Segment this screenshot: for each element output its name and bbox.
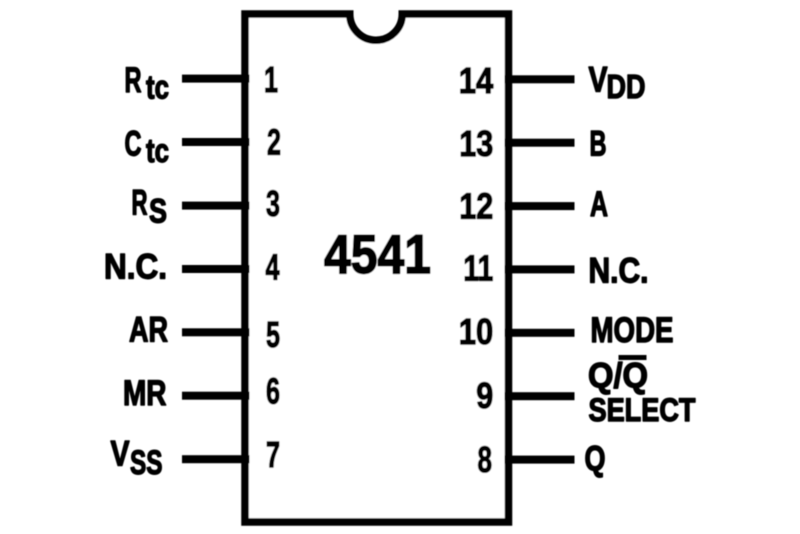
svg-text:R: R bbox=[125, 61, 142, 100]
svg-text:5: 5 bbox=[266, 314, 280, 355]
svg-text:C: C bbox=[125, 125, 142, 164]
svg-text:tc: tc bbox=[146, 69, 169, 106]
svg-text:SELECT: SELECT bbox=[589, 392, 696, 428]
svg-text:10: 10 bbox=[459, 311, 494, 352]
svg-text:V: V bbox=[111, 435, 131, 474]
svg-text:tc: tc bbox=[146, 132, 169, 169]
svg-text:8: 8 bbox=[478, 439, 493, 480]
svg-text:DD: DD bbox=[607, 68, 646, 105]
svg-text:4541: 4541 bbox=[324, 223, 431, 285]
svg-text:6: 6 bbox=[266, 371, 280, 412]
svg-text:12: 12 bbox=[459, 186, 493, 227]
svg-text:V: V bbox=[589, 61, 609, 100]
svg-text:4: 4 bbox=[266, 247, 280, 288]
svg-text:A: A bbox=[590, 185, 608, 224]
svg-text:1: 1 bbox=[264, 59, 278, 100]
svg-text:AR: AR bbox=[129, 311, 168, 350]
svg-text:B: B bbox=[590, 125, 607, 164]
svg-text:R: R bbox=[132, 184, 148, 223]
svg-text:N.C.: N.C. bbox=[589, 252, 649, 291]
svg-text:N.C.: N.C. bbox=[104, 248, 167, 287]
svg-text:14: 14 bbox=[459, 60, 494, 101]
svg-text:MODE: MODE bbox=[591, 311, 674, 350]
svg-text:13: 13 bbox=[459, 123, 493, 164]
svg-text:S: S bbox=[149, 193, 167, 231]
svg-text:7: 7 bbox=[266, 434, 280, 475]
svg-text:Q/Q: Q/Q bbox=[588, 357, 648, 396]
svg-text:11: 11 bbox=[463, 248, 493, 289]
svg-text:2: 2 bbox=[267, 122, 281, 163]
svg-text:MR: MR bbox=[123, 374, 167, 413]
svg-text:Q: Q bbox=[585, 440, 606, 479]
svg-text:3: 3 bbox=[266, 183, 280, 224]
svg-text:SS: SS bbox=[130, 444, 163, 482]
svg-text:9: 9 bbox=[476, 375, 493, 416]
